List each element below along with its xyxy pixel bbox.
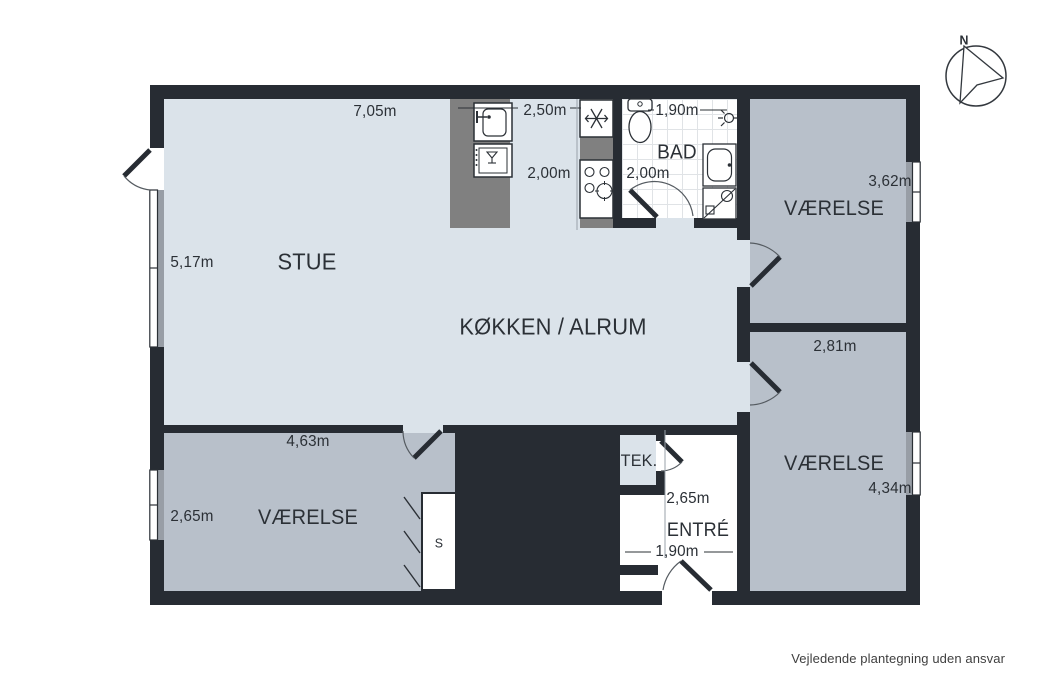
dim-sw-left: 2,65m — [170, 508, 213, 526]
wall-exterior-right-1 — [906, 85, 920, 162]
door-entry — [681, 561, 711, 590]
dim-kitchen-top: 2,50m — [523, 102, 566, 120]
wall-right-rooms-1 — [737, 99, 750, 240]
disclaimer-text: Vejledende plantegning uden ansvar — [791, 651, 1005, 666]
room-label-stue: STUE — [277, 249, 336, 276]
dim-kitchen-left: 2,00m — [527, 165, 570, 183]
wall-core-block — [455, 425, 620, 605]
kitchen-wall-counter — [580, 99, 613, 228]
room-label-vaerelse-sw: VÆRELSE — [258, 506, 358, 530]
room-label-vaerelse-se: VÆRELSE — [784, 452, 884, 476]
dim-se-height: 4,34m — [868, 480, 911, 498]
wall-bad-bottom-left — [622, 218, 656, 228]
door-balcony-arc — [124, 176, 150, 190]
floorplan-page: { "rooms": { "stue": "STUE", "kokken": "… — [0, 0, 1050, 700]
window-sw-left — [150, 470, 164, 540]
wall-sw-room-stub — [443, 425, 455, 433]
wall-kitchen-bad — [613, 99, 622, 228]
closet-label: S — [435, 536, 443, 551]
window-ne-right — [906, 162, 920, 222]
wall-tek-bottom — [620, 485, 665, 495]
dim-sw-top: 4,63m — [286, 433, 329, 451]
room-label-kokken: KØKKEN / ALRUM — [459, 314, 646, 341]
room-label-vaerelse-ne: VÆRELSE — [784, 197, 884, 221]
dim-entre-height: 2,65m — [666, 490, 709, 508]
room-label-bad: BAD — [657, 142, 697, 165]
wall-entre-stub — [618, 565, 658, 575]
compass-north-label: N — [959, 33, 968, 48]
dim-bad-top: 1,90m — [655, 102, 698, 120]
dim-ne-width: 3,62m — [868, 173, 911, 191]
wall-tek-top — [620, 425, 665, 435]
room-label-entre: ENTRÉ — [667, 520, 729, 542]
wall-right-rooms-2 — [737, 287, 750, 362]
wall-exterior-left-3 — [150, 540, 164, 605]
room-label-tek: TEK. — [621, 451, 658, 471]
dim-stue-left: 5,17m — [170, 254, 213, 272]
door-entry-arc — [663, 561, 681, 590]
threshold-ne-door — [737, 240, 750, 287]
wall-tek-right-upper — [656, 435, 665, 441]
door-balcony — [124, 150, 150, 176]
dim-stue-top: 7,05m — [353, 103, 396, 121]
wall-exterior-right-3 — [906, 495, 920, 605]
dim-se-top: 2,81m — [813, 338, 856, 356]
wall-exterior-top — [150, 85, 920, 99]
compass-north-arrow-icon — [946, 46, 1006, 106]
wall-tek-right-lower — [656, 471, 665, 485]
door-tek-arc — [661, 462, 682, 471]
threshold-se-door — [737, 362, 750, 412]
kitchen-island-counter — [450, 99, 510, 228]
dim-bad-left: 2,00m — [626, 165, 669, 183]
wall-exterior-left-1 — [150, 85, 164, 148]
window-stue-left — [150, 190, 164, 347]
wall-exterior-bottom-right — [712, 591, 920, 605]
wall-entre-top — [665, 425, 737, 435]
wall-sw-room-top — [164, 425, 403, 433]
wall-right-rooms-divider — [750, 323, 906, 332]
wall-right-rooms-3 — [737, 412, 750, 591]
threshold-sw-door — [403, 425, 443, 433]
door-tek — [661, 441, 682, 462]
dim-entre-width: 1,90m — [655, 543, 698, 561]
wall-exterior-right-2 — [906, 222, 920, 432]
wall-exterior-left-2 — [150, 347, 164, 470]
